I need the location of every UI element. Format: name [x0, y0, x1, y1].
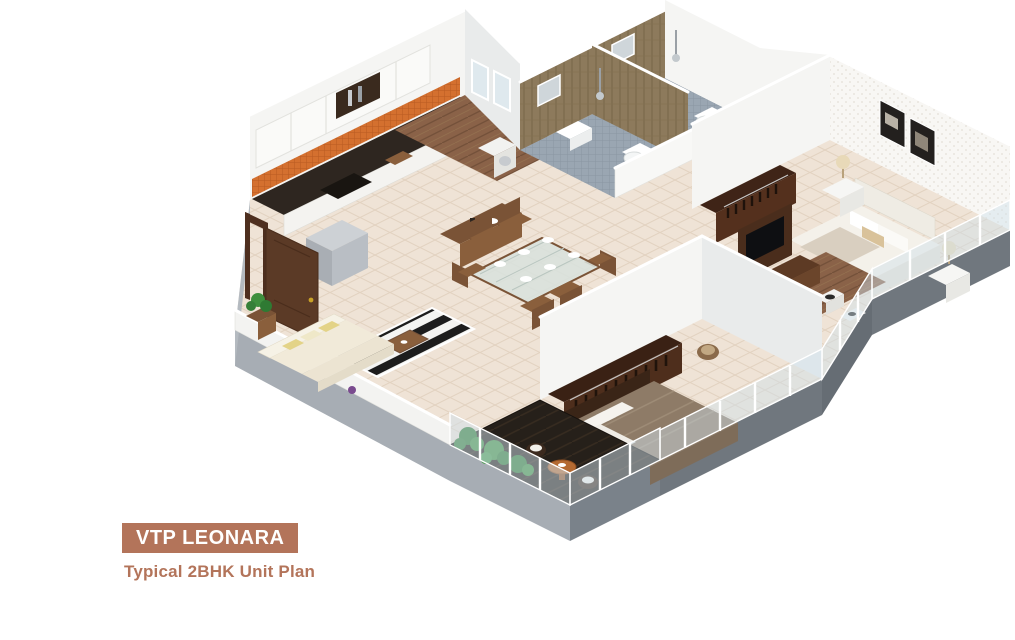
plant — [260, 300, 272, 312]
table-decor — [401, 340, 408, 344]
niche-bottle — [358, 86, 362, 102]
plate — [494, 261, 506, 267]
floor-plan-page: isometric 3D floor plan render Kitchen — [0, 0, 1015, 640]
plate — [544, 264, 556, 270]
basket-chair-cushion — [701, 345, 715, 355]
table-decor — [558, 463, 566, 467]
side-vase — [348, 386, 356, 394]
plant — [246, 301, 256, 311]
plate — [542, 237, 554, 243]
window — [494, 71, 510, 111]
chair-cushion — [530, 445, 542, 452]
window — [472, 60, 488, 100]
plan-subtitle: Typical 2BHK Unit Plan — [124, 562, 315, 582]
door-frame — [245, 212, 250, 300]
shower-head — [672, 54, 680, 62]
shower-head — [596, 92, 604, 100]
plate — [518, 249, 530, 255]
tray — [825, 295, 835, 300]
door-knob — [309, 298, 314, 303]
plate — [520, 276, 532, 282]
plate — [568, 252, 580, 258]
project-title-badge: VTP LEONARA — [122, 523, 298, 553]
niche-bottle — [348, 90, 352, 106]
